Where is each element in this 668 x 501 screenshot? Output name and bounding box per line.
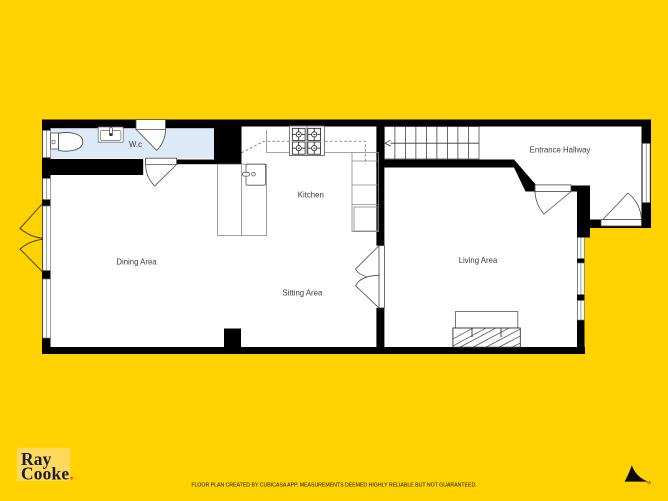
svg-text:W.c: W.c [129,140,142,149]
svg-text:Cooke.: Cooke. [21,463,74,483]
svg-text:Dining Area: Dining Area [116,258,157,267]
svg-text:FLOOR PLAN CREATED BY CUBICASA: FLOOR PLAN CREATED BY CUBICASA APP. MEAS… [191,483,476,489]
svg-text:Kitchen: Kitchen [298,191,324,200]
svg-text:Sitting Area: Sitting Area [282,289,323,298]
svg-text:Entrance Hallway: Entrance Hallway [530,146,591,155]
svg-text:Living Area: Living Area [459,256,498,265]
